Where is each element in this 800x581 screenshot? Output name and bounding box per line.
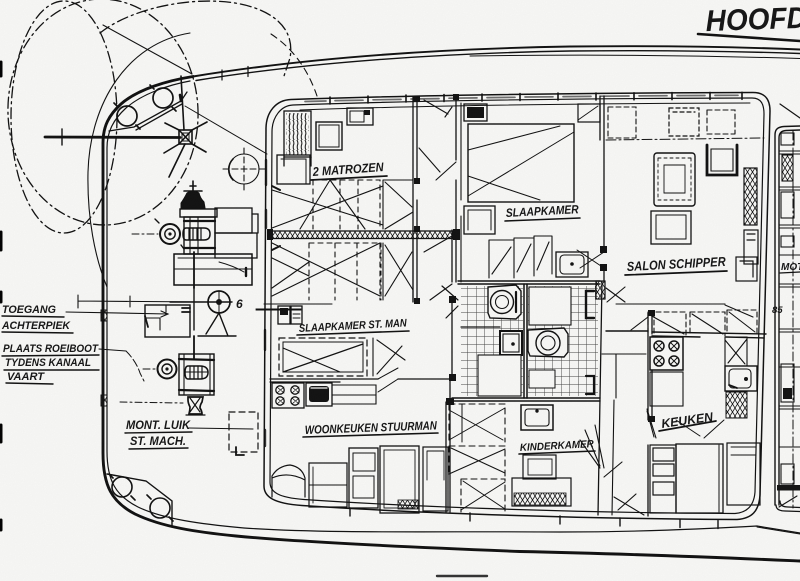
- svg-text:PLAATS ROEIBOOT: PLAATS ROEIBOOT: [3, 343, 99, 355]
- svg-text:6: 6: [236, 297, 243, 311]
- svg-text:MOT: MOT: [781, 262, 800, 273]
- svg-text:VAART: VAART: [7, 371, 45, 383]
- svg-text:TOEGANG: TOEGANG: [2, 304, 56, 316]
- svg-text:ST. MACH.: ST. MACH.: [130, 436, 186, 448]
- svg-text:85: 85: [772, 305, 783, 316]
- svg-text:ACHTERPIEK: ACHTERPIEK: [1, 320, 71, 332]
- svg-text:MONT. LUIK: MONT. LUIK: [126, 420, 191, 432]
- svg-text:TYDENS KANAAL: TYDENS KANAAL: [5, 357, 91, 369]
- svg-text:HOOFDEK: HOOFDEK: [705, 0, 800, 38]
